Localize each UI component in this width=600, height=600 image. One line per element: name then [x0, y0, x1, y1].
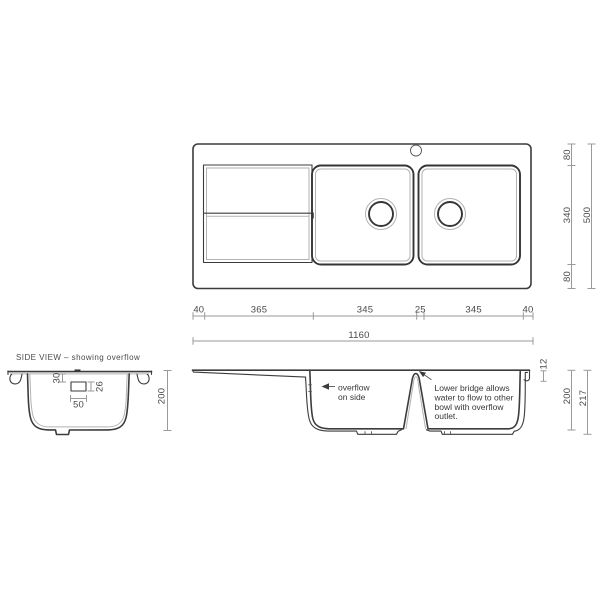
dim-label-217: 217 [578, 390, 589, 406]
side-view-title: SIDE VIEW – showing overflow [16, 353, 140, 362]
bowl-2 [419, 166, 521, 265]
dim-label-26: 26 [95, 381, 106, 392]
bowl-1-waste-ring [366, 199, 397, 230]
mounting-clip-right [137, 374, 149, 384]
mounting-clip-left [10, 374, 22, 384]
dim-label-25: 25 [415, 305, 426, 316]
dim-label-1160: 1160 [348, 330, 369, 341]
overflow-opening [71, 382, 86, 391]
overflow-note-line2: on side [338, 392, 366, 402]
dim-label-365: 365 [251, 305, 267, 316]
side-view: SIDE VIEW – showing overflow 30 26 50 [8, 353, 172, 435]
bowl-1-inner-line [316, 169, 411, 261]
dim-label-345-right: 345 [465, 305, 481, 316]
dim-label-40-right: 40 [523, 305, 534, 316]
bowl-2-outline [419, 166, 521, 265]
overflow-arrowhead-icon [322, 383, 330, 390]
bowl-1-waste-hole [369, 202, 393, 226]
plan-view [193, 144, 531, 289]
dim-label-345-left: 345 [357, 305, 373, 316]
dim-label-section-200: 200 [562, 388, 573, 404]
bowl-2-waste-hole [438, 202, 462, 226]
bowl-1-outline [312, 166, 414, 265]
plan-height-dimensions: 80 340 80 500 [562, 144, 596, 289]
section-view: overflow on side Lower bridge allows wat… [193, 359, 592, 435]
bridge-note-line4: outlet. [435, 411, 458, 421]
sink-technical-drawing: 80 340 80 500 40 365 345 25 345 40 1160 … [0, 0, 600, 600]
dim-label-40-left: 40 [193, 305, 204, 316]
bowl-1 [312, 166, 414, 265]
dim-label-500: 500 [582, 207, 593, 223]
bowl-2-inner-line [422, 169, 517, 261]
bridge-arrowhead-icon [419, 371, 426, 377]
dim-label-side-200: 200 [157, 388, 168, 404]
tap-hole [411, 145, 422, 156]
dim-label-30: 30 [52, 373, 63, 384]
drawing-svg: 80 340 80 500 40 365 345 25 345 40 1160 … [0, 0, 600, 600]
dim-label-12: 12 [539, 359, 550, 370]
section-drainer-underside [193, 370, 306, 377]
overflow-note-line1: overflow [338, 383, 371, 393]
drainer-area [204, 165, 313, 263]
dim-label-bottom-80: 80 [562, 271, 573, 282]
dim-label-top-80: 80 [562, 149, 573, 160]
dim-label-50: 50 [73, 400, 84, 411]
bowl-2-waste-ring [435, 199, 466, 230]
plan-width-dimensions: 40 365 345 25 345 40 1160 [193, 305, 533, 345]
dim-label-340: 340 [562, 207, 573, 223]
